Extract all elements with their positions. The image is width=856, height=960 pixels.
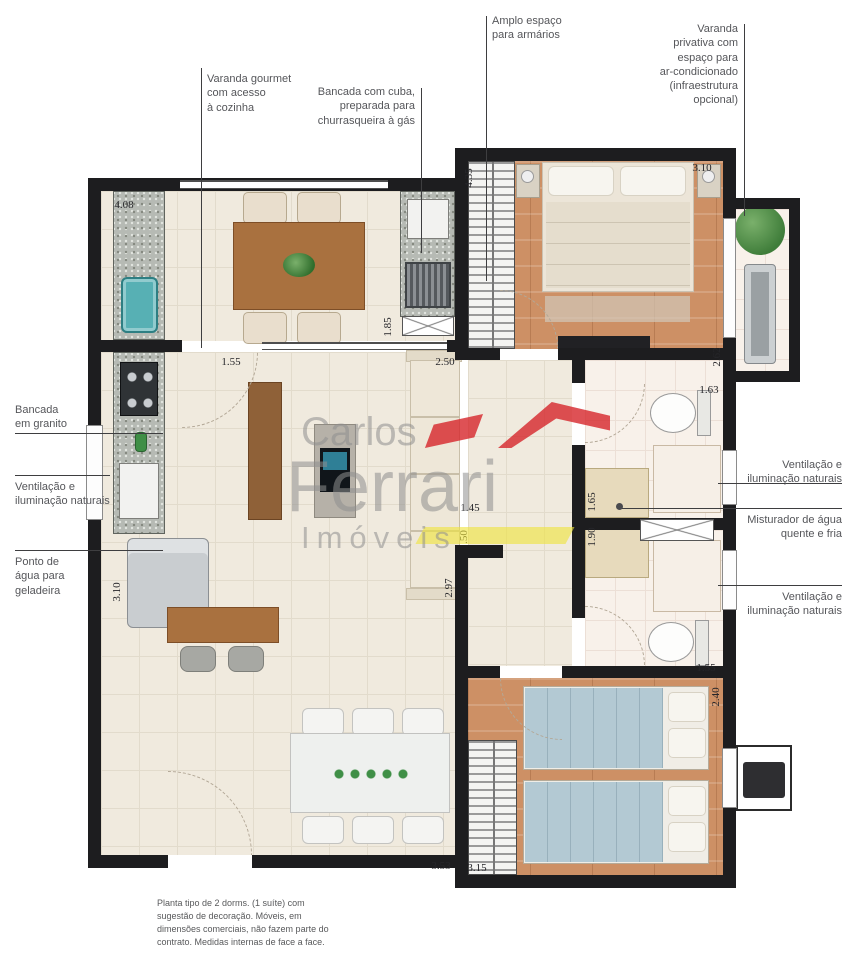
- leader-misturador: [622, 508, 842, 509]
- wall-suite-top: [455, 148, 736, 161]
- suite-balcony-door: [723, 218, 736, 338]
- plant: [735, 205, 785, 255]
- plan-disclaimer: Planta tipo de 2 dorms. (1 suíte) com su…: [157, 897, 397, 949]
- dining-chair: [352, 816, 394, 844]
- dim-bath1-width: 1.63: [699, 384, 718, 396]
- floorplan-image: 4.08 1.55 2.50 1.85 4.35 3.10 2.62 1.63 …: [0, 0, 856, 960]
- varanda-chair: [297, 192, 341, 224]
- varanda-sliding-door: [262, 342, 447, 350]
- bedroom2-desk: [743, 762, 785, 798]
- dim-varanda-gourmet: 4.08: [114, 199, 133, 211]
- callout-ponto-agua: Ponto de água para geladeira: [15, 555, 110, 598]
- dim-bedroom2-depth: 2.40: [710, 687, 722, 706]
- bath-niche: [640, 519, 714, 541]
- toilet-tank: [695, 620, 709, 666]
- kitchen-door-arc: [182, 352, 258, 428]
- cooktop: [120, 362, 158, 416]
- bedroom2-door-arc: [500, 678, 562, 740]
- suite-tv-console: [558, 336, 650, 348]
- dining-chair: [402, 708, 444, 736]
- callout-ventilacao-dir-1: Ventilação e iluminação naturais: [728, 458, 842, 487]
- bedroom2-wardrobe: [468, 740, 517, 875]
- floor-corridor: [468, 360, 572, 666]
- cuba-sink: [407, 199, 449, 239]
- leader-varanda-privativa: [744, 24, 745, 216]
- wall-bottom-living-left: [88, 855, 168, 868]
- television-screen: [323, 452, 347, 470]
- dim-living-depth: 2.97: [443, 578, 455, 597]
- leader-ponto-agua: [15, 550, 163, 551]
- leader-bancada-cuba: [421, 88, 422, 253]
- desk-chair: [228, 646, 264, 672]
- dim-suite-depth: 2.62: [711, 347, 723, 366]
- dining-chair: [352, 708, 394, 736]
- bottle-decor: [135, 432, 147, 452]
- pillow: [548, 166, 614, 196]
- wall-left: [88, 178, 101, 868]
- toilet-tank: [697, 390, 711, 436]
- leader-ventilacao-esq: [15, 475, 110, 476]
- callout-armarios: Amplo espaço para armários: [492, 14, 597, 43]
- dim-varanda-depth: 1.85: [382, 317, 394, 336]
- callout-varanda-privativa: Varanda privativa com espaço para ar-con…: [625, 22, 738, 108]
- dim-bedroom2-width: 3.15: [467, 862, 486, 874]
- bath1-door-arc: [585, 383, 645, 443]
- callout-ventilacao-dir-2: Ventilação e iluminação naturais: [728, 590, 842, 619]
- dim-kitchen-pass: 1.55: [221, 356, 240, 368]
- table-centerpiece-plant: [283, 253, 315, 277]
- callout-ventilacao-esq: Ventilação e iluminação naturais: [15, 480, 130, 509]
- entrance-door-arc: [168, 771, 252, 855]
- pillow: [668, 692, 706, 722]
- pillow: [668, 786, 706, 816]
- dim-living-width: 3.53: [431, 860, 450, 872]
- wall-right-bedroom2: [723, 610, 736, 748]
- wall-suite-bottom-right: [558, 348, 736, 360]
- dim-suite-width: 3.10: [692, 162, 711, 174]
- leader-armarios: [486, 16, 487, 281]
- dim-bath1-depth: 1.65: [586, 492, 598, 511]
- dining-chair: [402, 816, 444, 844]
- ac-unit-grille: [751, 272, 769, 356]
- pillow: [668, 728, 706, 758]
- toilet-bowl: [648, 622, 694, 662]
- dim-living-top: 2.50: [435, 356, 454, 368]
- varanda-chair: [243, 192, 287, 224]
- wall-varanda-priv-bottom: [730, 371, 800, 382]
- varanda-sink: [121, 277, 158, 333]
- grill-churrasqueira: [405, 262, 451, 308]
- varanda-chair: [297, 312, 341, 344]
- wall-varanda-priv-right: [789, 198, 800, 382]
- sofa: [410, 360, 460, 590]
- dining-chair: [302, 816, 344, 844]
- dim-corridor-width: 1.45: [460, 502, 479, 514]
- leader-bancada-granito: [15, 433, 163, 434]
- bedroom2-window: [722, 748, 737, 808]
- varanda-shelf: [402, 316, 454, 336]
- wall-center-lower: [455, 545, 468, 875]
- dim-suite-closet: 4.35: [463, 168, 475, 187]
- wall-bottom-bedroom2: [455, 875, 736, 888]
- wall-varanda-divider-left: [88, 340, 182, 352]
- dim-kitchen-depth: 3.10: [111, 582, 123, 601]
- dining-table: [290, 733, 450, 813]
- wall-bedroom2-top-left: [455, 666, 500, 678]
- callout-bancada-granito: Bancada em granito: [15, 403, 110, 432]
- leader-varanda-gourmet: [201, 68, 202, 348]
- sideboard-desk: [167, 607, 279, 643]
- pillow: [668, 822, 706, 852]
- twin-bed-blanket: [525, 782, 663, 862]
- suite-bed-runner: [545, 296, 690, 322]
- desk-chair: [180, 646, 216, 672]
- toilet-bowl: [650, 393, 696, 433]
- dim-bath2-depth: 1.90: [586, 527, 598, 546]
- dining-chair: [302, 708, 344, 736]
- shower-area: [653, 445, 721, 513]
- callout-bancada-cuba: Bancada com cuba, preparada para churras…: [300, 85, 415, 128]
- dim-corridor-half: .50: [458, 530, 470, 544]
- leader-ventilacao-dir-2: [718, 585, 842, 586]
- varanda-chair: [243, 312, 287, 344]
- pillow: [620, 166, 686, 196]
- suite-door-arc: [500, 290, 558, 348]
- dim-bath2-width: 1.55: [696, 662, 715, 674]
- wall-corridor-bath-b: [572, 445, 585, 618]
- wall-suite-bottom-left: [455, 348, 500, 360]
- varanda-railing: [180, 180, 388, 189]
- shower-area: [653, 540, 721, 612]
- wall-corridor-bath-a: [572, 360, 585, 383]
- lamp: [521, 170, 534, 183]
- bath2-door-arc: [585, 606, 645, 666]
- suite-blanket: [546, 202, 690, 288]
- callout-misturador: Misturador de água quente e fria: [728, 513, 842, 542]
